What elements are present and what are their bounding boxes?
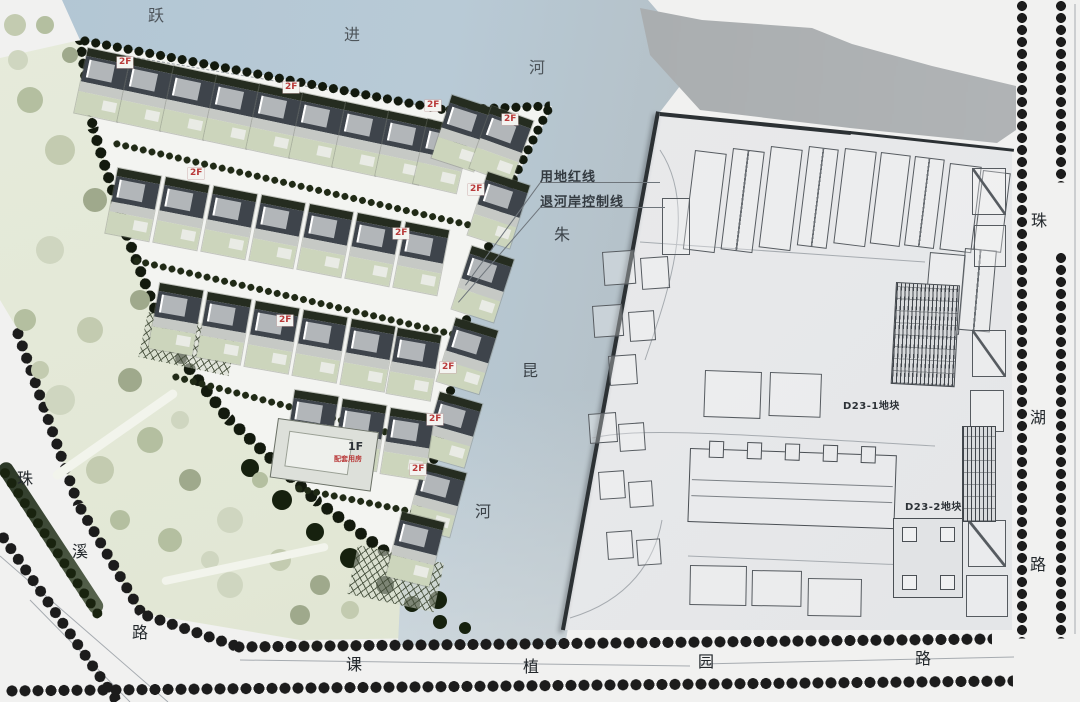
floor-badge: 2F [502, 114, 518, 125]
building-outline [628, 310, 656, 342]
road-name-char: 路 [1030, 551, 1046, 575]
floor-badge: 2F [425, 100, 441, 111]
dark-tree [433, 615, 447, 629]
road-name-char: 珠 [17, 465, 33, 489]
building-outline [618, 422, 646, 452]
street-tree-row [1056, 252, 1067, 638]
courtyard-building [893, 518, 963, 598]
label-land-red-line: 用地红线 [540, 166, 596, 185]
building-outline [904, 156, 945, 249]
building-outline [974, 225, 1006, 267]
river-name-char: 跃 [148, 2, 164, 26]
park-tree [217, 572, 243, 598]
building-outline [636, 538, 662, 566]
villa-building [245, 301, 300, 374]
villa-building [293, 310, 348, 383]
label-parcel-d23-1: D23-1地块 [843, 397, 900, 412]
river-name-char: 河 [529, 54, 545, 78]
floor-badge: 2F [117, 57, 133, 68]
floor-badge: 2F [283, 82, 299, 93]
courtyard-corner [940, 527, 955, 542]
floor-badge: 2F [188, 168, 204, 179]
building-outline [606, 530, 634, 560]
villa-building [249, 195, 305, 268]
dark-tree [459, 622, 471, 634]
label-riverbank-setback: 退河岸控制线 [540, 191, 624, 210]
building-outline [602, 250, 636, 286]
park-tree [217, 507, 243, 533]
villa-building [452, 246, 514, 322]
road-name-char: 溪 [72, 538, 88, 562]
park-tree [252, 472, 268, 488]
park-tree [158, 528, 182, 552]
villa-building [201, 186, 257, 259]
villa-building [297, 204, 353, 277]
map-graphics: 2F2F2F2F2F2F2F2F2F2F2F [0, 0, 1080, 702]
floor-badge: 2F [468, 184, 484, 195]
park-tree [290, 605, 310, 625]
building-outline [640, 256, 670, 290]
park-tree [36, 16, 54, 34]
river-name-char: 朱 [554, 221, 570, 245]
building-outline [703, 370, 762, 419]
courtyard-corner [940, 575, 955, 590]
label-parcel-d23-2: D23-2地块 [905, 498, 962, 513]
villa-building [387, 328, 442, 401]
villa-deck [272, 353, 288, 365]
building-notch [861, 446, 877, 464]
park-tree [62, 47, 78, 63]
street-tree-row [233, 633, 992, 653]
building-outline [592, 304, 624, 338]
hatched-building [962, 426, 996, 522]
park-tree [118, 368, 142, 392]
street-tree-row [140, 608, 238, 651]
building-outline [588, 412, 618, 444]
park-tree [36, 236, 64, 264]
hatched-building [891, 282, 960, 387]
floor-badge: 2F [440, 362, 456, 373]
road-name-char: 珠 [1031, 207, 1047, 231]
park-tree [341, 601, 359, 619]
street-tree-row [1017, 0, 1028, 638]
building-outline [797, 146, 839, 249]
slab-building [687, 448, 896, 529]
park-tree [137, 427, 163, 453]
park-tree [45, 385, 75, 415]
road-name-char: 植 [523, 653, 539, 677]
villa-roof-panel [390, 419, 418, 441]
building-line [691, 495, 892, 503]
building-outline [721, 148, 765, 253]
floor-label-1f: 1F [348, 440, 363, 453]
building-outline [972, 330, 1006, 377]
building-outline [662, 198, 690, 255]
villa-building [153, 177, 209, 250]
park-tree [14, 309, 36, 331]
building-outline [689, 565, 747, 606]
park-tree [179, 469, 201, 491]
park-path [161, 542, 329, 585]
building-outline [751, 570, 802, 607]
floor-badge: 2F [427, 414, 443, 425]
park-tree [77, 317, 103, 343]
building-outline [608, 354, 638, 386]
villa-building [341, 319, 396, 392]
villa-deck [320, 362, 336, 374]
road-name-char: 课 [346, 651, 362, 675]
building-outline [972, 168, 1006, 215]
building-notch [785, 443, 801, 461]
villa-building [345, 213, 401, 286]
building-outline [598, 470, 626, 500]
floor-badge: 2F [393, 228, 409, 239]
support-room-label: 配套用房 [334, 454, 362, 464]
road-name-char: 湖 [1030, 404, 1046, 428]
road-name-char: 园 [698, 648, 714, 672]
dark-tree [306, 523, 324, 541]
river-name-char: 昆 [522, 357, 538, 381]
park-tree [8, 50, 28, 70]
building-outline [759, 146, 803, 251]
courtyard-corner [902, 575, 917, 590]
villa-deck [224, 344, 240, 356]
building-notch [823, 445, 839, 463]
park-tree [45, 135, 75, 165]
villa-deck [414, 380, 430, 392]
floor-badge: 2F [410, 464, 426, 475]
building-line [692, 479, 893, 487]
villa-building [197, 292, 252, 365]
park-tree [171, 411, 189, 429]
building-outline [768, 372, 822, 418]
river-name-char: 进 [344, 21, 360, 45]
street-tree-row [6, 675, 1013, 697]
dark-tree [272, 490, 292, 510]
site-plan-map: 2F2F2F2F2F2F2F2F2F2F2F 用地红线 退河岸控制线 D23-1… [0, 0, 1080, 702]
river-name-char: 河 [475, 498, 491, 522]
building-notch [709, 441, 725, 459]
building-outline [628, 480, 654, 508]
building-outline [966, 575, 1008, 617]
park-tree [86, 456, 114, 484]
villa-deck [176, 335, 192, 347]
park-tree [17, 87, 43, 113]
road-name-char: 路 [132, 619, 148, 643]
floor-badge: 2F [277, 315, 293, 326]
park-tree [310, 575, 330, 595]
building-outline [968, 520, 1006, 567]
park-tree [83, 188, 107, 212]
park-tree [130, 290, 150, 310]
villa-deck [368, 371, 384, 383]
road-name-char: 路 [915, 645, 931, 669]
park-tree [110, 510, 130, 530]
courtyard-corner [902, 527, 917, 542]
building-outline [807, 578, 862, 617]
street-tree-row [1056, 0, 1067, 182]
building-notch [747, 442, 763, 460]
park-tree [4, 14, 26, 36]
park-tree [31, 361, 49, 379]
community-building-court [284, 431, 352, 476]
